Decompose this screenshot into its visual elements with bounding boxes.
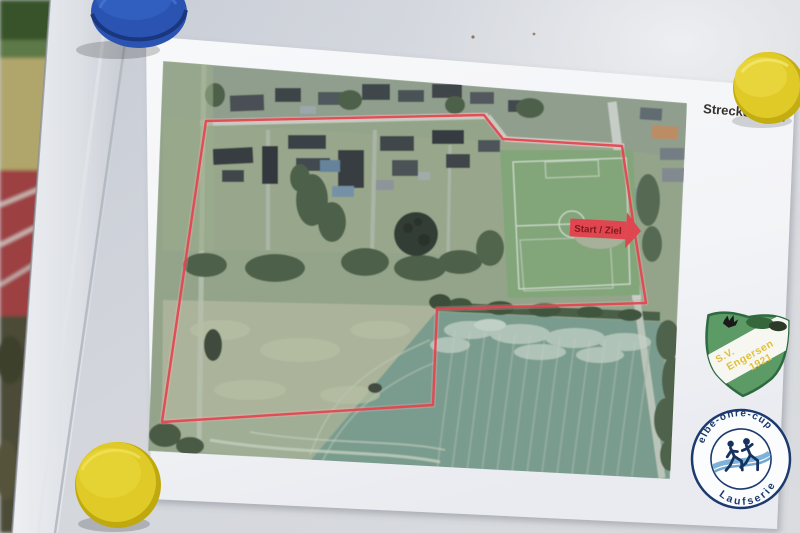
aerial-photo: Start / Ziel <box>148 61 688 479</box>
yellow-magnet-top-right <box>732 52 800 128</box>
photo-of-notice-board: Start / Ziel Strecke: 1 km S.V. Engersen… <box>0 0 800 533</box>
board-speck <box>471 35 474 38</box>
board-speck <box>533 33 536 36</box>
board-photo-canvas: Start / Ziel Strecke: 1 km S.V. Engersen… <box>0 0 800 533</box>
